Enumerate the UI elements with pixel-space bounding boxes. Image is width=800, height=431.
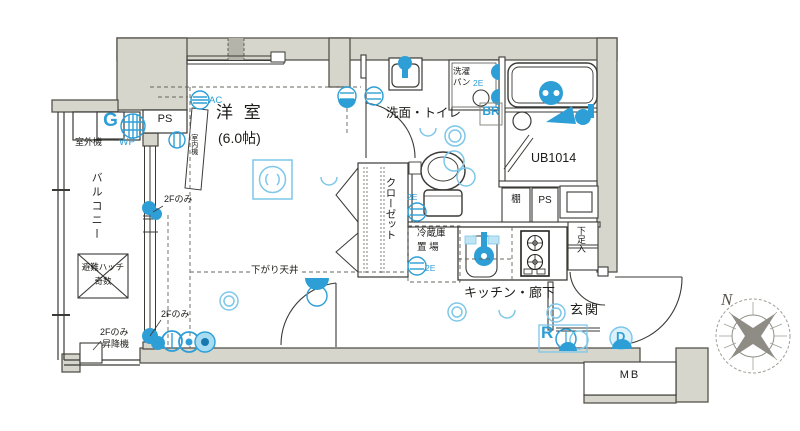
symbol-gas-meter: G [97,111,124,132]
wall-pillar-dashed [228,38,244,60]
closet-folding-doors [336,168,358,272]
room-door-switch [305,278,329,306]
label-dropped-ceiling: 下がり天井 [251,266,299,276]
bath-light [539,81,563,105]
closet-box [358,163,408,277]
label-2f-only-top: 2Fのみ [164,195,193,205]
label-lift: 昇降機 [102,340,129,350]
label-outdoor-unit: 室外機 [75,138,102,148]
window-marks [142,201,165,350]
label-laundry-pan-2: パン [453,78,470,87]
label-2e-laundry: 2E [473,79,483,88]
symbol-wp: WP [119,137,135,148]
label-2f-only-lift: 2Fのみ [100,328,129,338]
switch-pair [338,87,383,108]
label-laundry-pan-1: 洗濯 [453,67,470,76]
label-compass-north: N [721,291,732,310]
label-pipe-space-right: PS [532,195,558,206]
label-meter-box: MB [584,369,676,381]
label-western-room: 洋 室 [216,104,264,123]
label-entrance: 玄関 [570,303,600,317]
label-evac-hatch-odd: 奇数 [78,277,128,286]
compass [716,299,790,373]
label-2f-only-bottom: 2Fのみ [161,310,190,320]
label-2e-fridge: 2E [425,264,435,273]
compass-star [730,313,775,358]
label-shoe-cabinet: 下足入 [575,226,585,253]
label-shelf: 棚 [502,195,530,205]
doors [281,78,682,347]
label-fridge-2: 置 場 [417,243,439,253]
bathroom-door [504,135,533,172]
label-closet: クローゼット [384,177,396,240]
symbol-door: D [616,330,625,344]
label-washroom-toilet: 洗面・トイレ [386,107,461,121]
toilet [409,152,465,216]
label-2e-toilet: 2E [407,193,417,202]
floor-plan-page: PS 室外機 G WP バルコニー 避難ハッチ 奇数 2Fのみ 2Fのみ 2Fの… [0,0,800,431]
ac-symbol [191,91,209,109]
label-unit-bath: UB1014 [531,152,576,166]
fridge-outlet [408,257,426,275]
symbol-ring: R [541,324,553,343]
label-fridge-1: 冷蔵庫 [417,229,446,239]
symbol-ac: AC [209,96,222,106]
floor-plan-drawing [0,0,800,431]
ps-outlet-symbol [169,132,185,148]
label-indoor-unit: 室内機 [190,134,198,155]
label-pipe-space-top: PS [143,113,187,125]
label-western-room-size: (6.0帖) [218,131,261,146]
label-evac-hatch: 避難ハッチ [78,263,128,272]
symbol-bath-remote: BR [480,105,502,118]
label-kitchen-hallway: キッチン・廊下 [464,286,555,300]
label-balcony: バルコニー [90,172,102,242]
